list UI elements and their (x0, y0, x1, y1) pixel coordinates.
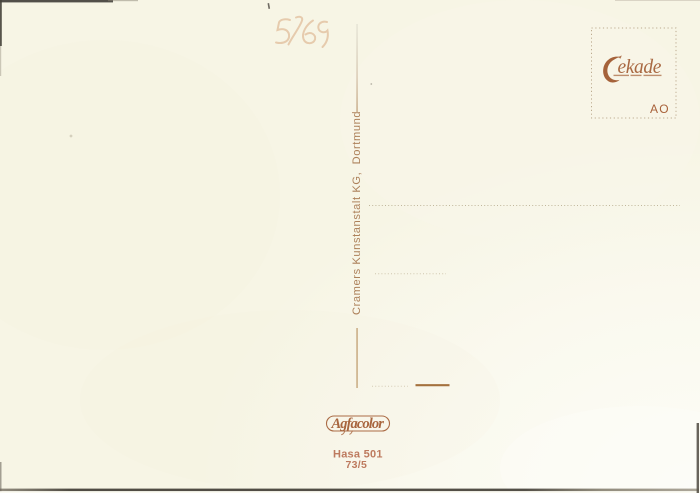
svg-text:Cramers Kunstanstalt KG, Dort: Cramers Kunstanstalt KG, Dortmund (351, 111, 363, 315)
svg-text:Agfacolor: Agfacolor (331, 416, 385, 432)
svg-text:73/5: 73/5 (346, 459, 368, 471)
svg-text:AO: AO (650, 102, 670, 116)
